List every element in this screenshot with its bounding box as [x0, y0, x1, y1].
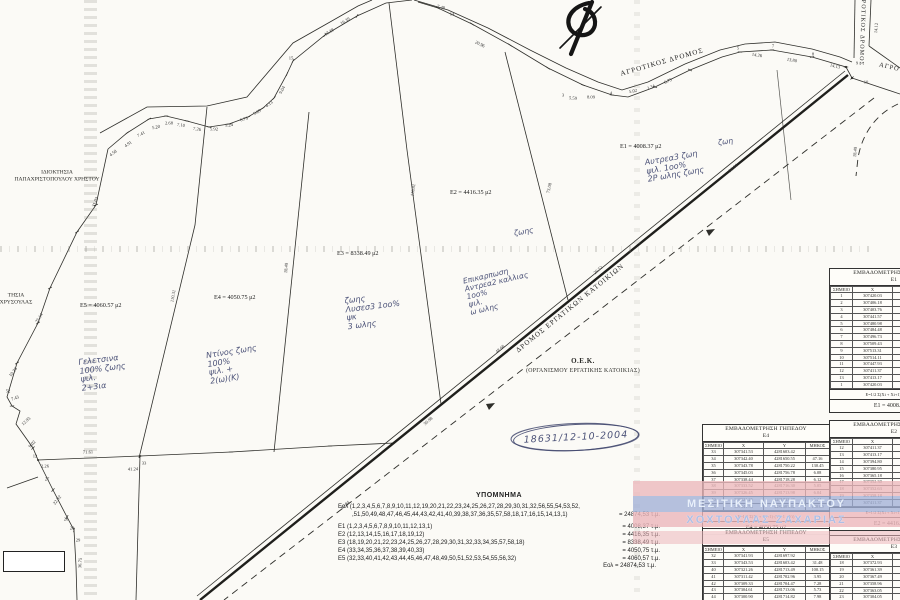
table-row: 37307338.444281718.286.12	[704, 476, 830, 483]
table-formula: Ε=1/2 Σ(Χi + Χi+1)·(Υi+1 - Υi)	[830, 507, 900, 518]
table-cell: 130.00	[806, 503, 830, 510]
table-row: 42307309.334281704.477.28	[704, 580, 830, 587]
measurement-label: 2.68	[165, 121, 173, 126]
table-row: 16307365.184281728.15	[831, 472, 900, 479]
table-cell: 307484.48	[853, 327, 893, 334]
table-header-cell: Χ	[853, 438, 893, 445]
table-cell: 4281774.15	[893, 587, 900, 594]
table-cell: 4281713.06	[764, 587, 806, 594]
table-cell: 307413.17	[853, 374, 893, 381]
table-cell: 6.08	[806, 469, 830, 476]
table-cell: 12	[831, 368, 853, 375]
table-cell: 34	[704, 456, 724, 463]
measurement-label: 3	[562, 93, 564, 98]
table-cell: 307338.44	[724, 476, 764, 483]
table-row: 36307345.034281756.786.08	[704, 469, 830, 476]
table-row: 19307358.184281692.35	[831, 492, 900, 499]
table-cell: 307413.17	[853, 452, 893, 459]
table-cell: 5.05	[806, 483, 830, 490]
table-row: 40307321.264281713.495.24	[704, 496, 830, 503]
table-cell: 307326.45	[724, 490, 764, 497]
measurement-label: 14	[450, 12, 455, 17]
table-cell: 4281736.62	[893, 479, 900, 486]
axis-arrowheads	[486, 229, 715, 410]
scanned-survey-map: ΙΔΙΟΚΤΗΣΙΑ ΠΑΠΑΧΡΙΣΤΟΠΟΥΛΟΥ ΧΡΗΣΤΟΥ ΤΗΣΙ…	[0, 0, 900, 600]
table-cell: 4281742.95	[893, 306, 900, 313]
table-cell: 307361.39	[853, 567, 893, 574]
table-cell: 4281702.96	[764, 573, 806, 580]
vertex-tick	[286, 72, 288, 76]
table-result: Ε1 = 4008.37 μ2	[830, 400, 900, 412]
table-cell: 4281603.42	[764, 503, 806, 510]
area-table-Ε2: ΕΜΒΑΔΟΜΕΤΡΗΣΗ ΓΗΠΕΔΟΥΕ2ΣΗΜΕΙΟΧΥΜΗΚΟΣ1230…	[829, 420, 900, 531]
table-cell: 4281699.81	[893, 445, 900, 452]
owner-label-line2: ΠΑΠΑΧΡΙΣΤΟΠΟΥΛΟΥ ΧΡΗΣΤΟΥ	[14, 177, 99, 184]
table-row: 20307367.494281760.92	[831, 573, 900, 580]
table-cell: 307304.05	[853, 594, 893, 600]
table-cell: 4281699.81	[893, 368, 900, 375]
table-cell: 44	[704, 594, 724, 600]
table-cell: 36	[704, 469, 724, 476]
coords-table: ΣΗΜΕΙΟΧΥΜΗΚΟΣ12307411.374281699.81133074…	[830, 438, 900, 507]
table-cell: 307311.42	[724, 573, 764, 580]
table-cell: 38	[704, 483, 724, 490]
parcel-area-label: Ε2 = 4416.35 μ2	[450, 189, 492, 196]
table-cell: 100.15	[806, 566, 830, 573]
table-row: 34307342.404281650.5547.16	[704, 456, 830, 463]
table-cell: 8	[831, 340, 853, 347]
area-table-Ε3: ΕΜΒΑΔΟΜΕΤΡΗΣΗ ΓΗΠΕΔΟΥΕ3ΣΗΜΕΙΟΧΥΜΗΚΟΣ1830…	[829, 535, 900, 600]
table-row: 15307380.954281721.93	[831, 465, 900, 472]
table-cell: 18	[831, 486, 853, 493]
table-title: ΕΜΒΑΔΟΜΕΤΡΗΣΗ ΓΗΠΕΔΟΥΕ4	[703, 425, 829, 442]
table-row: 1307420.034281711.84	[831, 293, 900, 300]
table-cell: 40	[704, 566, 724, 573]
area-table-Ε1: ΕΜΒΑΔΟΜΕΤΡΗΣΗ ΓΗΠΕΔΟΥΕ1ΣΗΜΕΙΟΧΥΜΗΚΟΣ1307…	[829, 268, 900, 413]
table-cell: 307341.93	[724, 553, 764, 560]
table-cell: 4281707.27	[893, 452, 900, 459]
table-row: 35307343.784281750.22130.45	[704, 462, 830, 469]
table-cell: 37	[704, 476, 724, 483]
table-cell: 307380.95	[853, 465, 893, 472]
table-header-cell: ΣΗΜΕΙΟ	[831, 438, 853, 445]
table-row: 12307411.374281699.81	[831, 499, 900, 506]
table-result: Ε2 = 4416.35 μ2	[830, 518, 900, 530]
table-cell: 4281711.84	[893, 381, 900, 388]
coords-table: ΣΗΜΕΙΟΧΥΜΗΚΟΣ33307341.534281603.42343073…	[703, 442, 830, 511]
table-cell: 307363.05	[853, 587, 893, 594]
table-header-cell: ΣΗΜΕΙΟ	[831, 553, 853, 560]
table-row: 9307513.314281723.92	[831, 347, 900, 354]
coords-table: ΣΗΜΕΙΟΧΥΜΗΚΟΣ32307341.934281697.92333073…	[703, 546, 830, 600]
table-cell: 1	[831, 293, 853, 300]
measurement-label: 5.92	[210, 127, 218, 132]
table-row: 12307411.374281699.81	[831, 368, 900, 375]
table-header-cell: Χ	[724, 442, 764, 449]
table-cell: 307372.93	[853, 560, 893, 567]
table-cell: 307406.18	[853, 300, 893, 307]
table-cell: 10	[831, 354, 853, 361]
table-row: 23307304.054281769.30	[831, 594, 900, 600]
measurement-label: 26	[64, 517, 69, 522]
table-row: 33307341.534281603.42	[704, 449, 830, 456]
table-header-cell: Υ	[764, 546, 806, 553]
table-header-cell: ΜΗΚΟΣ	[806, 546, 830, 553]
table-cell: 3	[831, 306, 853, 313]
legend-entry-area: = 4050,75 τ.μ.	[622, 548, 660, 556]
table-formula: Ε=1/2 Σ(Χi + Χi+1)·(Υi+1 - Υi)	[703, 511, 829, 522]
measurement-label: 8.09	[587, 95, 595, 100]
table-cell: 4	[831, 313, 853, 320]
table-cell: 23	[831, 594, 853, 600]
table-cell: 19	[831, 492, 853, 499]
table-cell	[806, 449, 830, 456]
road-vertical-east-edge	[869, 0, 871, 46]
table-cell: 307309.33	[724, 580, 764, 587]
table-cell: 33	[704, 503, 724, 510]
table-cell: 41	[704, 573, 724, 580]
table-cell: 4281745.08	[893, 486, 900, 493]
table-cell: 16	[831, 472, 853, 479]
table-row: 38307333.524281716.305.05	[704, 483, 830, 490]
legend-entry: Ε4 (33,34,35,36,37,38,39,40,33)= 4050,75…	[338, 548, 660, 556]
measurement-label: 9	[856, 61, 858, 66]
vertex-tick	[581, 84, 585, 86]
table-header-cell: ΜΗΚΟΣ	[806, 442, 830, 449]
measurement-label: 18.49	[283, 263, 289, 274]
table-cell	[806, 553, 830, 560]
table-row: 1307420.034281711.84	[831, 381, 900, 388]
table-cell: 4281716.40	[893, 458, 900, 465]
table-cell: 307403.76	[853, 306, 893, 313]
table-cell: 307300.90	[724, 594, 764, 600]
table-row: 5307480.984281766.02	[831, 320, 900, 327]
parcel-area-label: Ε4 = 4050.75 μ2	[214, 294, 256, 301]
legend-entry: Ε3 (18,19,20,21,22,23,24,25,26,27,28,29,…	[338, 540, 660, 548]
table-cell: 4281692.35	[893, 492, 900, 499]
legend-entry-points: Ε3 (18,19,20,21,22,23,24,25,26,27,28,29,…	[338, 540, 525, 548]
table-cell: 307509.43	[853, 340, 893, 347]
measurement-label: 33	[142, 461, 147, 466]
table-cell: 17	[831, 479, 853, 486]
owner-label-nw: ΙΔΙΟΚΤΗΣΙΑ ΠΑΠΑΧΡΙΣΤΟΠΟΥΛΟΥ ΧΡΗΣΤΟΥ	[14, 170, 99, 185]
table-cell: 1	[831, 381, 853, 388]
legend-entry-points: Ε2 (12,13,14,15,16,17,18,19,12)	[338, 532, 424, 540]
table-cell: 4281760.92	[893, 573, 900, 580]
table-row: 43307304.614281713.065.73	[704, 587, 830, 594]
owner-label-west: ΤΗΣΙΑ ΧΡΥΣΟΥΛΑΣ	[0, 293, 32, 308]
vertex-tick	[470, 23, 474, 26]
table-cell: 14	[831, 458, 853, 465]
table-cell: 4281711.84	[893, 293, 900, 300]
owner-label-west-line1: ΤΗΣΙΑ	[0, 293, 32, 300]
table-cell: 20	[831, 573, 853, 580]
table-cell: 6.04	[806, 490, 830, 497]
table-row: 13307413.174281707.27	[831, 452, 900, 459]
protocol-number: 18631/12-10-2004	[523, 429, 628, 445]
table-row: 44307300.904281714.827.98	[704, 594, 830, 600]
legend-entries: Ε1 (1,2,3,4,5,6,7,8,9,10,11,12,13,1)= 40…	[338, 524, 660, 563]
table-row: 8307509.434281736.41	[831, 340, 900, 347]
area-table-Ε5: ΕΜΒΑΔΟΜΕΤΡΗΣΗ ΓΗΠΕΔΟΥΕ5ΣΗΜΕΙΟΧΥΜΗΚΟΣ3230…	[702, 528, 830, 600]
table-cell: 19	[831, 567, 853, 574]
table-cell: 22	[831, 587, 853, 594]
table-cell: 35	[704, 462, 724, 469]
divider-e4-e3	[274, 112, 309, 452]
table-cell: 15	[831, 465, 853, 472]
table-cell: 6	[831, 327, 853, 334]
table-cell: 6.12	[806, 476, 830, 483]
legend-entry: Ε5 (32,33,40,41,42,43,44,45,46,47,48,49,…	[338, 556, 660, 564]
table-cell: 33	[704, 449, 724, 456]
measurement-label: 10	[864, 80, 869, 85]
table-cell: 4281768.24	[893, 580, 900, 587]
table-cell: 4281721.93	[893, 465, 900, 472]
measurement-label: 12	[33, 454, 38, 459]
legend-entry-area: = 4060,57 τ.μ.	[622, 556, 660, 564]
table-header-cell: Υ	[764, 442, 806, 449]
table-cell: 307345.03	[724, 469, 764, 476]
legend-entry: Ε2 (12,13,14,15,16,17,18,19,12)= 4416,35…	[338, 532, 660, 540]
table-cell: 4281713.98	[764, 490, 806, 497]
table-row: 13307413.174281707.27	[831, 374, 900, 381]
measurement-label: 8	[812, 52, 814, 57]
table-title: ΕΜΒΑΔΟΜΕΤΡΗΣΗ ΓΗΠΕΔΟΥΕ3	[830, 536, 900, 553]
owner-label-line1: ΙΔΙΟΚΤΗΣΙΑ	[14, 170, 99, 177]
table-cell: 307304.61	[724, 587, 764, 594]
vertex-tick	[185, 121, 189, 122]
table-cell: 4281723.92	[893, 347, 900, 354]
legend-eol-line1: Εολ (1,2,3,4,5,6,7,8,9,10,11,12,19,20,21…	[338, 504, 660, 512]
table-header-cell: ΣΗΜΕΙΟ	[704, 442, 724, 449]
divider-e3-e2	[389, 3, 441, 404]
measurement-label: 41.24	[128, 466, 139, 471]
parcel-area-label: Ε3 = 8338.49 μ2	[337, 250, 379, 257]
measurement-label: 7.26	[193, 126, 202, 132]
table-cell: 307352.30	[853, 479, 893, 486]
table-cell: 4281752.66	[893, 567, 900, 574]
table-cell: 4281757.31	[893, 313, 900, 320]
table-cell: 7.98	[806, 594, 830, 600]
table-cell: 5.24	[806, 496, 830, 503]
parcel-north-boundary-east	[418, 2, 852, 97]
divider-e5-e4	[139, 107, 207, 458]
table-cell: 33	[704, 560, 724, 567]
legend-entry-points: Ε4 (33,34,35,36,37,38,39,40,33)	[338, 548, 424, 556]
table-cell: 4281707.27	[893, 374, 900, 381]
measurement-label: 28	[70, 526, 75, 531]
table-cell: 4281718.28	[764, 476, 806, 483]
table-cell: 5	[831, 320, 853, 327]
table-cell: 307343.53	[724, 560, 764, 567]
legend-eol-value: = 24874,53 τ.μ.	[619, 512, 660, 520]
blank-stamp-box	[3, 551, 65, 572]
table-header-cell: Χ	[853, 553, 893, 560]
legend-entry-area: = 4008,37 τ.μ.	[622, 524, 660, 532]
table-cell: 130.45	[806, 462, 830, 469]
table-cell: 307513.31	[853, 347, 893, 354]
table-row: 17307352.304281736.62	[831, 479, 900, 486]
table-cell: 47.16	[806, 456, 830, 463]
road-east-south-edge	[852, 78, 900, 94]
table-row: 33307341.534281603.42130.00	[704, 503, 830, 510]
table-cell: 307411.37	[853, 368, 893, 375]
table-cell: 3.95	[806, 573, 830, 580]
measurement-label: 52	[6, 389, 11, 394]
table-cell: 4281704.87	[893, 361, 900, 368]
table-cell: 307394.80	[853, 458, 893, 465]
table-cell: 4281704.47	[764, 580, 806, 587]
measurement-label: 29	[76, 538, 81, 543]
table-cell: 32	[704, 553, 724, 560]
coords-table: ΣΗΜΕΙΟΧΥΜΗΚΟΣ18307372.934281745.08193073…	[830, 553, 900, 600]
table-cell: 4281713.66	[893, 354, 900, 361]
legend-eol-line2: ,51,50,49,48,47,46,45,44,43,42,41,40,39,…	[338, 512, 568, 520]
coords-table: ΣΗΜΕΙΟΧΥΜΗΚΟΣ1307420.034281711.842307406…	[830, 286, 900, 389]
table-cell: 4281714.82	[764, 594, 806, 600]
table-cell: 4281745.08	[893, 560, 900, 567]
table-row: 6307484.484281759.84	[831, 327, 900, 334]
table-cell: 18	[831, 560, 853, 567]
parcel-area-label: Ε1 = 4008.37 μ2	[620, 143, 662, 150]
table-cell: 307480.98	[853, 320, 893, 327]
table-cell: 307358.18	[853, 492, 893, 499]
table-row: 39307326.454281713.986.04	[704, 490, 830, 497]
table-cell: 307411.37	[853, 445, 893, 452]
legend-total: Εολ = 24874,53 τ.μ.	[338, 563, 660, 571]
measurement-label: 7.10	[177, 122, 186, 128]
legend-entry: Ε1 (1,2,3,4,5,6,7,8,9,10,11,12,13,1)= 40…	[338, 524, 660, 532]
table-row: 22307363.054281774.15	[831, 587, 900, 594]
table-cell: 4281699.81	[893, 499, 900, 506]
measurement-label: 2.26	[41, 464, 49, 469]
table-header-cell: Χ	[724, 546, 764, 553]
table-cell: 39	[704, 490, 724, 497]
table-cell: 307321.26	[724, 566, 764, 573]
oek-sublabel: (ΟΡΓΑΝΙΣΜΟΥ ΕΡΓΑΤΙΚΗΣ ΚΑΤΟΙΚΙΑΣ)	[526, 368, 640, 374]
measurement-label: 71.61	[83, 449, 94, 454]
measurement-label: 36.75	[77, 558, 83, 569]
legend: ΥΠΟΜΝΗΜΑ Εολ (1,2,3,4,5,6,7,8,9,10,11,12…	[338, 492, 660, 571]
table-cell: 307358.96	[853, 580, 893, 587]
table-cell: 21	[831, 580, 853, 587]
table-cell: 13	[831, 452, 853, 459]
table-cell: 4281748.57	[893, 334, 900, 341]
measurement-label: 18.49	[852, 147, 858, 158]
table-header-cell: ΣΗΜΕΙΟ	[831, 286, 853, 293]
vertex-tick	[508, 44, 512, 47]
table-cell: 4281650.55	[764, 456, 806, 463]
table-cell: 12	[831, 499, 853, 506]
table-cell: 307343.78	[724, 462, 764, 469]
table-header-cell: ΣΗΜΕΙΟ	[704, 546, 724, 553]
table-title: ΕΜΒΑΔΟΜΕΤΡΗΣΗ ΓΗΠΕΔΟΥΕ2	[830, 421, 900, 438]
table-cell: 4281766.02	[893, 320, 900, 327]
table-row: 18307352.634281745.08	[831, 486, 900, 493]
table-cell: 307365.18	[853, 472, 893, 479]
area-table-Ε4: ΕΜΒΑΔΟΜΕΤΡΗΣΗ ΓΗΠΕΔΟΥΕ4ΣΗΜΕΙΟΧΥΜΗΚΟΣ3330…	[702, 424, 830, 535]
table-cell: 307321.26	[724, 496, 764, 503]
neighbor-line	[777, 70, 791, 200]
measurement-label: 5	[737, 46, 739, 51]
legend-entry-points: Ε5 (32,33,40,41,42,43,44,45,46,47,48,49,…	[338, 556, 516, 564]
table-cell: 4281728.15	[893, 472, 900, 479]
table-cell: 4281736.41	[893, 340, 900, 347]
table-cell: 307411.37	[853, 499, 893, 506]
table-header-cell: Υ	[893, 553, 900, 560]
legend-title: ΥΠΟΜΝΗΜΑ	[338, 492, 660, 500]
table-row: 32307341.934281697.92	[704, 553, 830, 560]
table-cell: 7.28	[806, 580, 830, 587]
table-row: 21307358.964281768.24	[831, 580, 900, 587]
table-cell: 307514.11	[853, 354, 893, 361]
table-cell: 4281769.30	[893, 594, 900, 600]
table-cell: 7	[831, 334, 853, 341]
table-cell: 2	[831, 300, 853, 307]
table-cell: 42	[704, 580, 724, 587]
table-cell: 5.73	[806, 587, 830, 594]
vertex-tick	[125, 132, 128, 135]
table-header-cell: Υ	[893, 286, 900, 293]
table-cell: 43	[704, 587, 724, 594]
table-cell: 31.48	[806, 560, 830, 567]
parcel-area-label: Ε5 = 4060.57 μ2	[80, 302, 122, 309]
table-row: 18307372.934281745.08	[831, 560, 900, 567]
table-cell: 307341.53	[724, 449, 764, 456]
vertex-tick	[273, 96, 276, 99]
owner-label-west-line2: ΧΡΥΣΟΥΛΑΣ	[0, 300, 32, 307]
table-cell: 307333.52	[724, 483, 764, 490]
table-row: 7307496.734281748.57	[831, 334, 900, 341]
road-curve-dashed	[856, 104, 898, 176]
table-row: 10307514.114281713.66	[831, 354, 900, 361]
table-formula: Ε=1/2 Σ(Χi + Χi+1)·(Υi+1 - Υi)	[830, 389, 900, 400]
legend-entry-area: = 8338,49 τ.μ.	[622, 540, 660, 548]
table-cell: 307496.73	[853, 334, 893, 341]
table-row: 14307394.804281716.40	[831, 458, 900, 465]
table-title: ΕΜΒΑΔΟΜΕΤΡΗΣΗ ΓΗΠΕΔΟΥΕ5	[703, 529, 829, 546]
table-cell: 307352.63	[853, 486, 893, 493]
measurement-label: 4	[610, 91, 612, 96]
table-row: 4307441.574281757.31	[831, 313, 900, 320]
table-row: 3307403.764281742.95	[831, 306, 900, 313]
handwritten-marker-glyph	[560, 2, 601, 54]
road-vertical-west-edge	[854, 0, 855, 58]
table-cell: 4281713.49	[764, 496, 806, 503]
table-cell: 13	[831, 374, 853, 381]
table-row: 41307311.424281702.963.95	[704, 573, 830, 580]
vertex-tick	[261, 107, 265, 109]
table-cell: 4281716.30	[764, 483, 806, 490]
table-cell: 4281759.84	[893, 327, 900, 334]
table-cell: 12	[831, 445, 853, 452]
measurement-label: 7	[772, 44, 774, 49]
table-cell: 307341.53	[724, 503, 764, 510]
table-header-cell: Χ	[853, 286, 893, 293]
table-cell: 9	[831, 347, 853, 354]
tick-branch-line	[7, 477, 38, 488]
measurement-label: 14.12	[873, 23, 879, 34]
table-cell: 4281756.78	[764, 469, 806, 476]
table-row: 33307343.534281603.4231.48	[704, 560, 830, 567]
table-row: 19307361.394281752.66	[831, 567, 900, 574]
handwritten-note: ζωηςΛυσεσ3 1οο%ψκ3 ωλης	[344, 291, 402, 332]
table-cell: 307420.03	[853, 293, 893, 300]
table-cell: 4281750.22	[764, 462, 806, 469]
table-title: ΕΜΒΑΔΟΜΕΤΡΗΣΗ ΓΗΠΕΔΟΥΕ1	[830, 269, 900, 286]
oek-label: Ο.Ε.Κ.	[571, 357, 595, 365]
measurement-label: 5.59	[569, 95, 577, 101]
